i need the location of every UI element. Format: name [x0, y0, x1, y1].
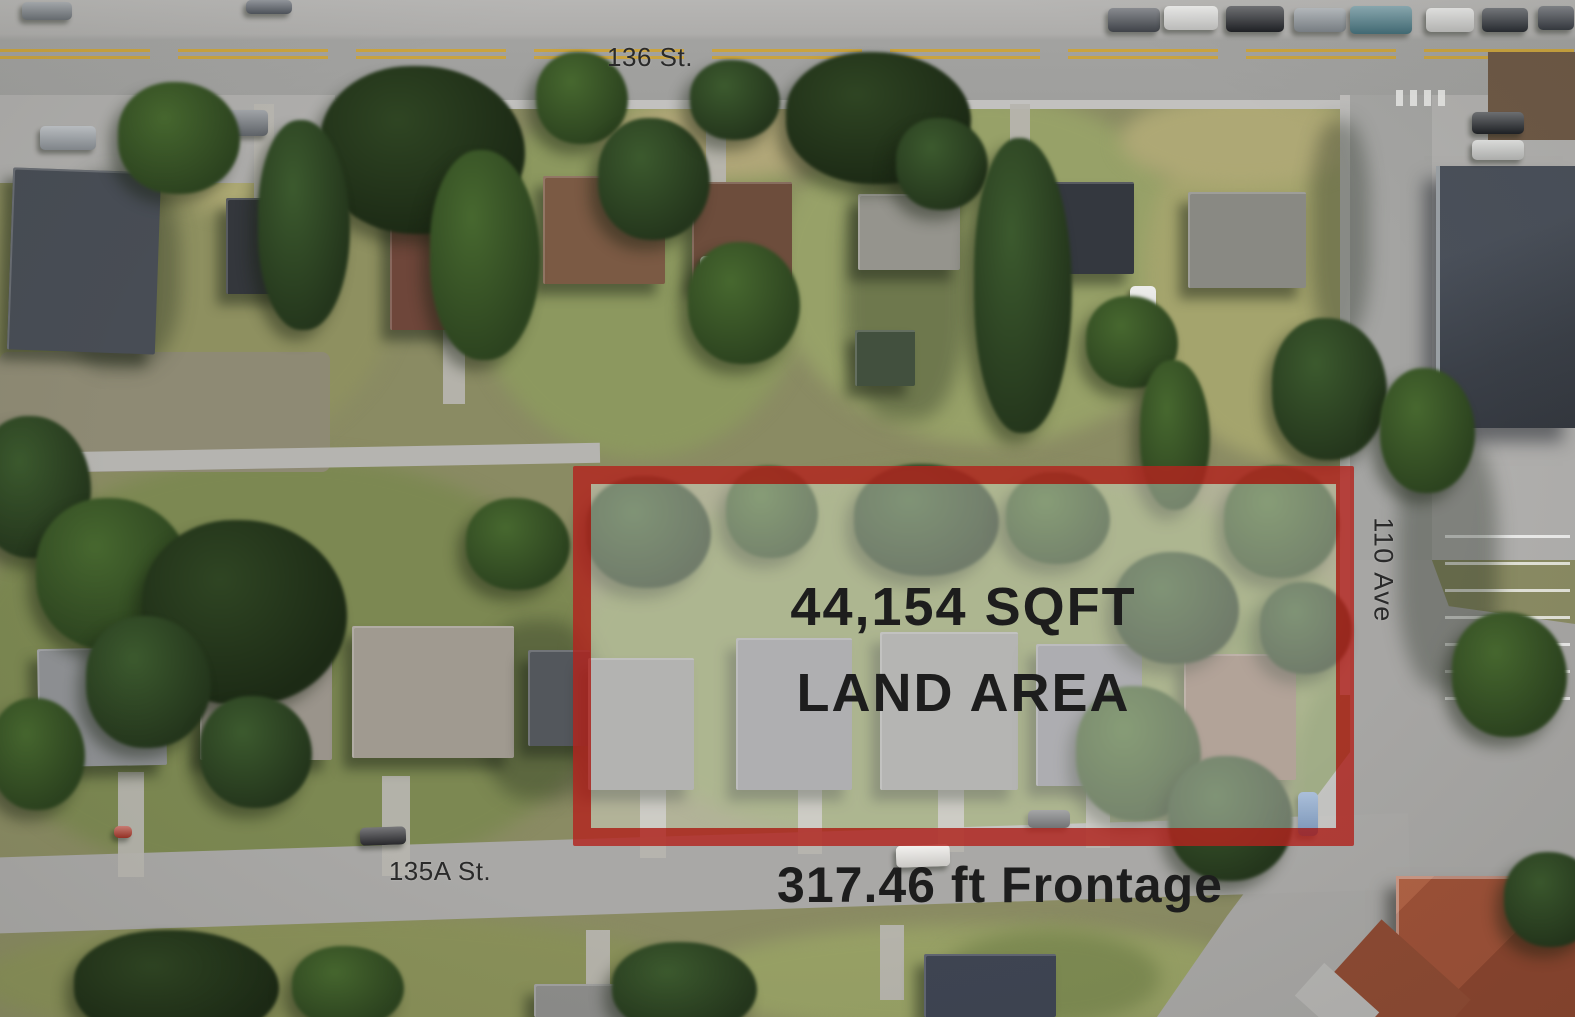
tree — [1380, 368, 1475, 493]
car — [1164, 6, 1218, 30]
car — [1108, 8, 1160, 32]
house-roof — [855, 330, 915, 386]
car — [1472, 112, 1524, 134]
house-roof — [924, 954, 1056, 1017]
land-area-value: 44,154 SQFT — [591, 576, 1336, 638]
house-roof — [352, 626, 514, 758]
tree — [896, 118, 988, 210]
yellow-center-line — [0, 56, 1575, 59]
tree — [118, 82, 240, 194]
property-boundary — [573, 466, 1354, 846]
house-roof — [1188, 192, 1306, 288]
car — [40, 126, 96, 150]
car — [22, 2, 72, 20]
tree — [1452, 612, 1567, 737]
house-roof — [7, 167, 161, 354]
tree — [688, 242, 800, 364]
tree — [1272, 318, 1387, 460]
driveway — [118, 772, 144, 877]
car — [360, 826, 407, 846]
tree — [200, 696, 312, 808]
land-area-caption: LAND AREA — [591, 662, 1336, 724]
car — [1350, 6, 1412, 34]
tree — [1504, 852, 1575, 947]
tree — [598, 118, 710, 240]
aerial-photo: 136 St. 110 Ave 135A St. 44,154 SQFT LAN… — [0, 0, 1575, 1017]
tree — [86, 616, 211, 748]
tree-shadow — [1310, 120, 1370, 340]
frontage-label: 317.46 ft Frontage — [640, 856, 1360, 914]
car — [246, 0, 292, 14]
tree — [430, 150, 540, 360]
tree — [258, 120, 350, 330]
street-label-136-st: 136 St. — [560, 42, 740, 73]
crosswalk — [1396, 90, 1446, 106]
street-label-135a-st: 135A St. — [340, 856, 540, 887]
street-label-110-ave: 110 Ave — [1368, 517, 1399, 623]
car — [1226, 6, 1284, 32]
car — [1426, 8, 1474, 32]
car — [114, 826, 132, 838]
car — [1538, 6, 1574, 30]
car — [1472, 140, 1524, 160]
car — [1294, 8, 1346, 32]
yellow-center-line — [0, 49, 1575, 52]
tree — [466, 498, 570, 590]
car — [1482, 8, 1528, 32]
driveway — [880, 925, 904, 1000]
